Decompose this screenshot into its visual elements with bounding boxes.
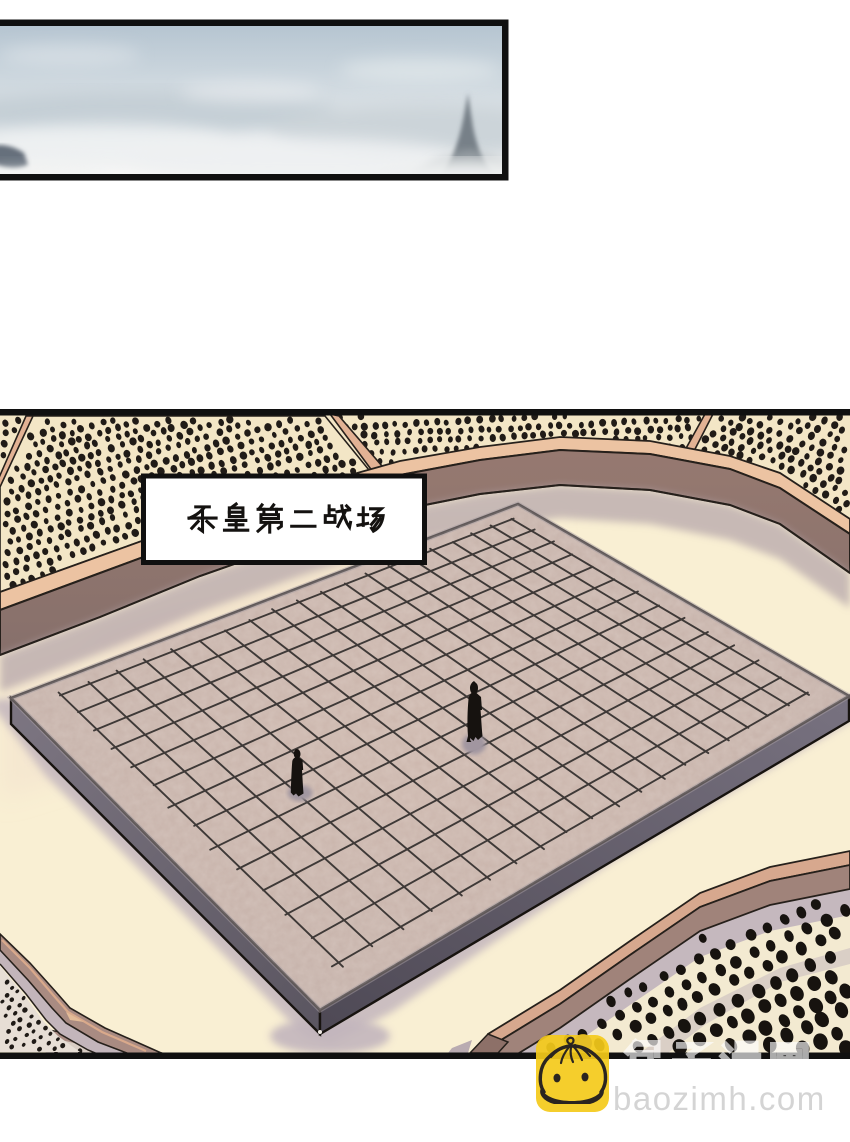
svg-text:baozimh.com: baozimh.com	[613, 1080, 826, 1117]
